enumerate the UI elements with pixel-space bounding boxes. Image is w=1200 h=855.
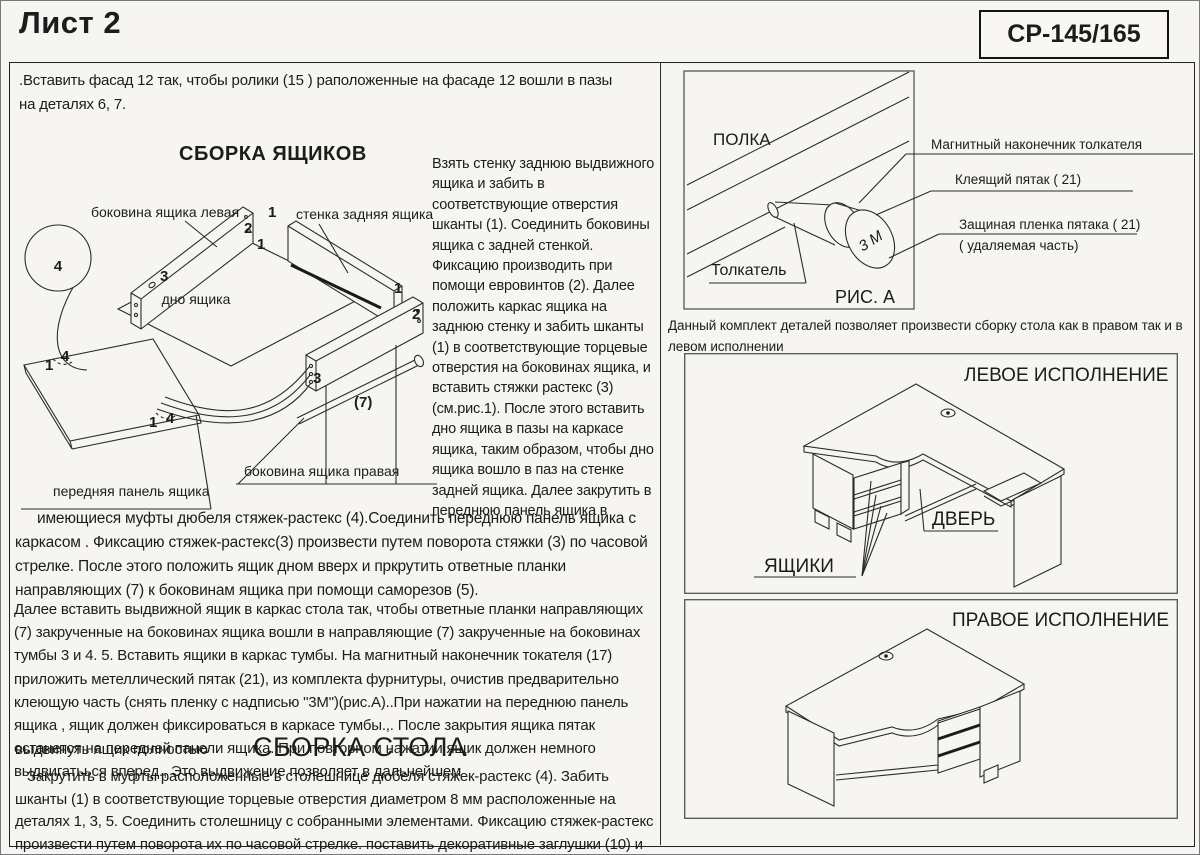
drawer-assembly-diagram: 4 боковина ящика левая стенка задняя ящи… bbox=[13, 169, 437, 525]
label-front-panel: передняя панель ящика bbox=[53, 483, 210, 499]
model-code-box: СР-145/165 bbox=[979, 10, 1169, 59]
step-circle: 4 bbox=[25, 225, 91, 291]
callout: 1 bbox=[45, 357, 53, 374]
annotation-magnet-tip: Магнитный наконечник толкателя bbox=[931, 137, 1142, 152]
callout: 1 bbox=[268, 204, 276, 221]
callout: 3 bbox=[160, 268, 168, 285]
callout: 2 bbox=[244, 220, 252, 237]
fig-a-diagram: 3 М ПОЛКА Толкатель РИС. А Магнитный нак… bbox=[663, 63, 1196, 315]
intro-text: .Вставить фасад 12 так, чтобы ролики (15… bbox=[19, 69, 619, 117]
instruction-sheet: Лист 2 СР-145/165 .Вставить фасад 12 так… bbox=[0, 0, 1200, 855]
annotation-film-line2: ( удаляемая часть) bbox=[959, 238, 1078, 253]
callout: 1 bbox=[257, 236, 265, 253]
label-bottom: дно ящика bbox=[162, 291, 231, 307]
callout: 4 bbox=[166, 410, 175, 427]
callout: 2 bbox=[412, 306, 420, 323]
left-desk-drawing bbox=[804, 384, 1064, 587]
label-side-left: боковина ящика левая bbox=[91, 204, 239, 220]
note-text: Данный комплект деталей позволяет произв… bbox=[668, 315, 1196, 357]
svg-text:4: 4 bbox=[54, 258, 63, 275]
model-code: СР-145/165 bbox=[1007, 20, 1140, 49]
magnetic-pusher: 3 М bbox=[766, 196, 905, 277]
column-divider bbox=[660, 62, 661, 845]
assembly-column-text: Взять стенку заднюю выдвижного ящика и з… bbox=[432, 154, 659, 521]
drawers-label: ЯЩИКИ bbox=[764, 556, 834, 577]
callout: (7) bbox=[354, 394, 372, 411]
paragraph-fasten: имеющиеся муфты дюбеля стяжек-растекс (4… bbox=[15, 507, 657, 603]
paragraph-tail: выдвинуть ящик полностью bbox=[15, 741, 208, 758]
pusher-label: Толкатель bbox=[711, 262, 787, 279]
callout: 1 bbox=[394, 280, 402, 297]
drawers-assembly-heading: СБОРКА ЯЩИКОВ bbox=[179, 143, 367, 166]
right-version-diagram: ПРАВОЕ ИСПОЛНЕНИЕ bbox=[684, 599, 1178, 819]
door-label: ДВЕРЬ bbox=[932, 509, 995, 530]
annotation-glue-disc: Клеящий пятак ( 21) bbox=[955, 172, 1081, 187]
right-desk-drawing bbox=[786, 629, 1024, 806]
desk-assembly-heading: СБОРКА СТОЛА bbox=[253, 732, 466, 763]
page-title: Лист 2 bbox=[19, 5, 121, 41]
drawer-front-panel bbox=[24, 339, 201, 449]
annotation-film-line1: Защиная пленка пятака ( 21) bbox=[959, 217, 1140, 232]
callout: 3 bbox=[313, 370, 321, 387]
callout: 1 bbox=[149, 414, 157, 431]
label-back-wall: стенка задняя ящика bbox=[296, 206, 433, 222]
left-version-title: ЛЕВОЕ ИСПОЛНЕНИЕ bbox=[964, 365, 1168, 386]
fig-a-caption: РИС. А bbox=[835, 287, 895, 307]
paragraph-desk-assembly: Закрутить в муфты расположенные в столеш… bbox=[15, 766, 659, 855]
right-version-title: ПРАВОЕ ИСПОЛНЕНИЕ bbox=[952, 610, 1169, 631]
left-version-diagram: ЛЕВОЕ ИСПОЛНЕНИЕ ДВЕРЬ bbox=[684, 353, 1178, 594]
shelf-label: ПОЛКА bbox=[713, 130, 771, 149]
label-side-right: боковина ящика правая bbox=[244, 463, 399, 479]
arrow-curve-1 bbox=[165, 367, 309, 411]
callout: 4 bbox=[61, 348, 70, 365]
